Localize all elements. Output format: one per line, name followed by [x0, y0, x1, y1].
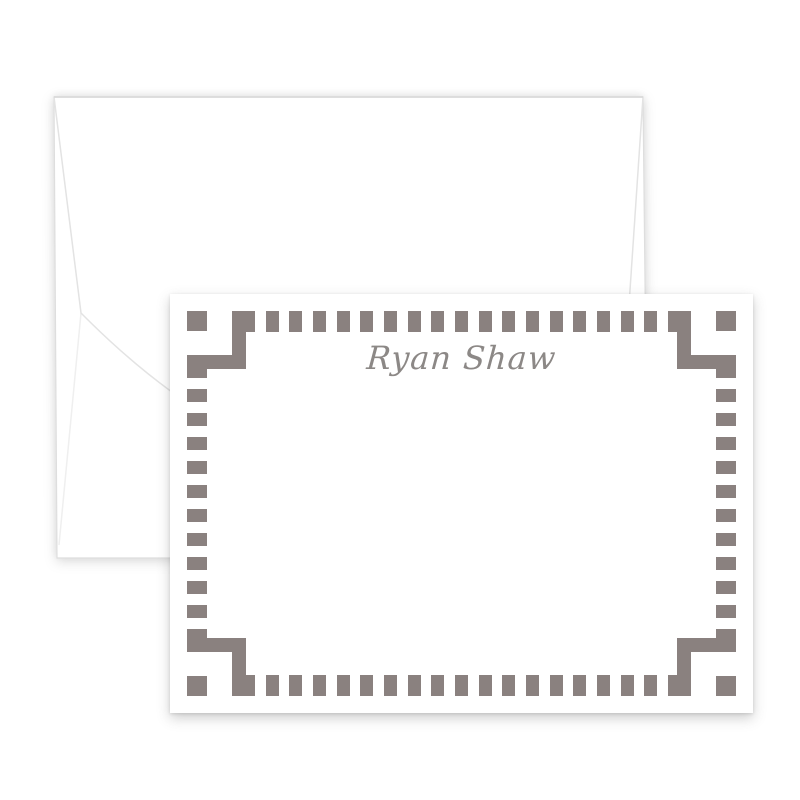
- border-dash: [360, 311, 373, 332]
- border-dash: [716, 485, 736, 498]
- border-dash: [597, 675, 610, 696]
- border-dash: [337, 311, 350, 332]
- corner-square: [187, 676, 207, 696]
- border-dash: [573, 675, 586, 696]
- border-dash: [360, 675, 373, 696]
- product-photo: Ryan Shaw: [0, 0, 800, 800]
- border-dash: [313, 311, 326, 332]
- border-dash: [187, 509, 207, 522]
- corner-square: [716, 676, 736, 696]
- card-border-top: [242, 311, 681, 332]
- border-dash: [289, 675, 302, 696]
- border-dash: [716, 461, 736, 474]
- border-dash: [716, 557, 736, 570]
- border-dash: [187, 605, 207, 618]
- border-dash: [431, 675, 444, 696]
- border-dash: [597, 311, 610, 332]
- border-dash: [187, 581, 207, 594]
- border-dash: [187, 533, 207, 546]
- border-dash: [716, 605, 736, 618]
- border-dash: [621, 311, 634, 332]
- border-dash: [187, 413, 207, 426]
- border-dash: [479, 311, 492, 332]
- border-dash: [621, 675, 634, 696]
- border-dash: [716, 533, 736, 546]
- border-dash: [266, 675, 279, 696]
- border-dash: [455, 675, 468, 696]
- border-dash: [716, 437, 736, 450]
- corner-square: [187, 311, 207, 331]
- border-dash: [550, 311, 563, 332]
- border-dash: [384, 675, 397, 696]
- border-dash: [644, 311, 657, 332]
- border-dash: [187, 389, 207, 402]
- card-border-corner-bottom-left: [187, 638, 246, 696]
- border-dash: [289, 311, 302, 332]
- border-dash: [479, 675, 492, 696]
- border-dash: [187, 557, 207, 570]
- border-dash: [187, 437, 207, 450]
- card-border-bottom: [242, 675, 681, 696]
- border-dash: [408, 675, 421, 696]
- note-card: Ryan Shaw: [170, 294, 753, 713]
- border-dash: [431, 311, 444, 332]
- border-dash: [384, 311, 397, 332]
- personalized-name: Ryan Shaw: [169, 340, 755, 376]
- border-dash: [337, 675, 350, 696]
- border-dash: [455, 311, 468, 332]
- border-dash: [187, 485, 207, 498]
- border-dash: [526, 311, 539, 332]
- corner-bracket-horizontal: [187, 638, 246, 652]
- corner-square: [716, 311, 736, 331]
- border-dash: [550, 675, 563, 696]
- border-dash: [313, 675, 326, 696]
- border-dash: [716, 581, 736, 594]
- card-border-right: [716, 365, 736, 642]
- border-dash: [573, 311, 586, 332]
- border-dash: [408, 311, 421, 332]
- border-dash: [716, 509, 736, 522]
- border-dash: [187, 461, 207, 474]
- card-border-corner-bottom-right: [677, 638, 736, 696]
- border-dash: [502, 675, 515, 696]
- border-dash: [526, 675, 539, 696]
- border-dash: [644, 675, 657, 696]
- border-dash: [716, 389, 736, 402]
- border-dash: [502, 311, 515, 332]
- border-dash: [266, 311, 279, 332]
- corner-bracket-horizontal: [677, 638, 736, 652]
- card-border-left: [187, 365, 207, 642]
- border-dash: [716, 413, 736, 426]
